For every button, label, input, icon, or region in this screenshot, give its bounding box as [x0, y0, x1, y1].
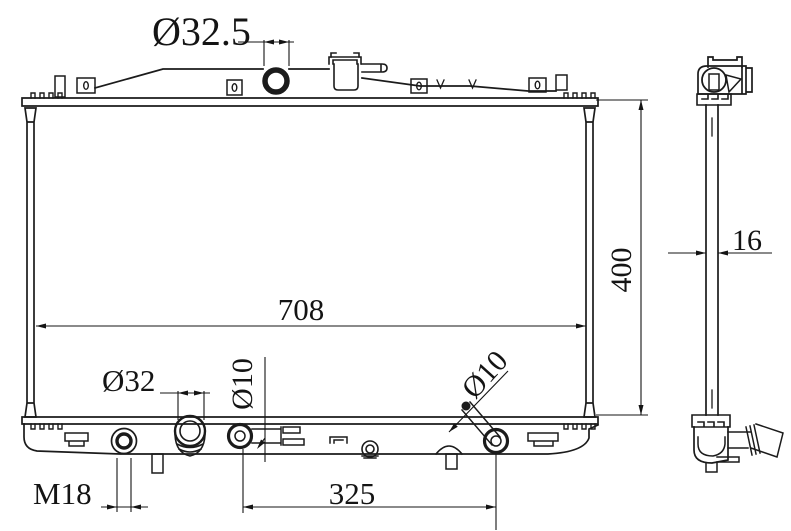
clip-bracket-left [65, 433, 88, 446]
mount-pin-left-rod [252, 427, 304, 445]
dimension-drain-plug: M18 [33, 458, 148, 512]
dim-label-filler-neck: Ø32.5 [152, 9, 251, 54]
bottom-tab-left [152, 454, 163, 473]
side-bottom-collar [692, 415, 730, 427]
dimension-core-width: 708 [36, 292, 586, 329]
core-side-plate-left [25, 108, 36, 417]
dim-arrowhead [257, 440, 265, 450]
side-inlet-port [702, 68, 726, 92]
drawing-canvas: Ø32.5 708 400 16 Ø32 [0, 0, 791, 531]
tank-inner-bracket [330, 437, 347, 443]
top-tank-strip [22, 98, 598, 106]
cap-flange [329, 57, 361, 64]
core-side-plate-right [584, 108, 595, 417]
tank-hump [436, 446, 462, 454]
dim-label-core-thickness: 16 [732, 224, 762, 257]
side-foot-tab [706, 457, 739, 472]
dimension-right-pin: Ø10 [449, 344, 514, 432]
side-top-collar [697, 94, 731, 105]
front-view [22, 53, 598, 473]
dimension-overall-height: 400 [596, 100, 648, 415]
dimension-core-thickness: 16 [668, 224, 772, 257]
bottom-tank-strip [22, 417, 598, 424]
dimension-pin-spacing: 325 [243, 449, 496, 530]
mount-pin-right-dot [462, 402, 471, 411]
side-bowl-inner-arc [698, 437, 725, 456]
dim-line [101, 458, 148, 512]
drain-plug-inner [117, 434, 131, 448]
bottom-tank-body [24, 424, 598, 454]
cap-body [334, 64, 358, 90]
clip-bracket-right [528, 433, 558, 446]
dimension-outlet: Ø32 [102, 363, 210, 420]
top-tank-upper-contour [95, 69, 556, 91]
bracket-hole-icon [84, 82, 89, 90]
dim-label-core-width: 708 [278, 292, 325, 327]
filler-neck-ring [265, 70, 287, 92]
dim-label-pin-spacing: 325 [329, 476, 376, 511]
dim-label-right-pin: Ø10 [455, 344, 514, 404]
bracket-hole-icon [535, 81, 540, 89]
dimension-annotations: Ø32.5 708 400 16 Ø32 [33, 9, 772, 530]
radiator-cap [329, 53, 387, 90]
side-core [706, 105, 718, 415]
side-view [692, 57, 783, 472]
dimension-filler-neck: Ø32.5 [152, 9, 294, 66]
dim-label-overall-height: 400 [605, 248, 638, 293]
radiator-technical-drawing: Ø32.5 708 400 16 Ø32 [0, 0, 791, 531]
mount-pin-left-outer [229, 425, 252, 448]
mount-pin-right-inner [491, 436, 501, 446]
dim-arrowheads [696, 251, 728, 256]
dim-label-outlet: Ø32 [102, 363, 155, 398]
mount-pin-left-inner [235, 431, 245, 441]
dim-label-drain-plug: M18 [33, 476, 92, 511]
overflow-pipe [362, 64, 387, 72]
drain-plug-outer [112, 429, 137, 454]
dim-label-left-pin: Ø10 [226, 358, 259, 410]
bracket-hole-icon [232, 84, 237, 92]
mount-boss-inner [366, 445, 374, 453]
bottom-tab-right [446, 454, 457, 469]
side-outlet-pipe [728, 424, 783, 457]
